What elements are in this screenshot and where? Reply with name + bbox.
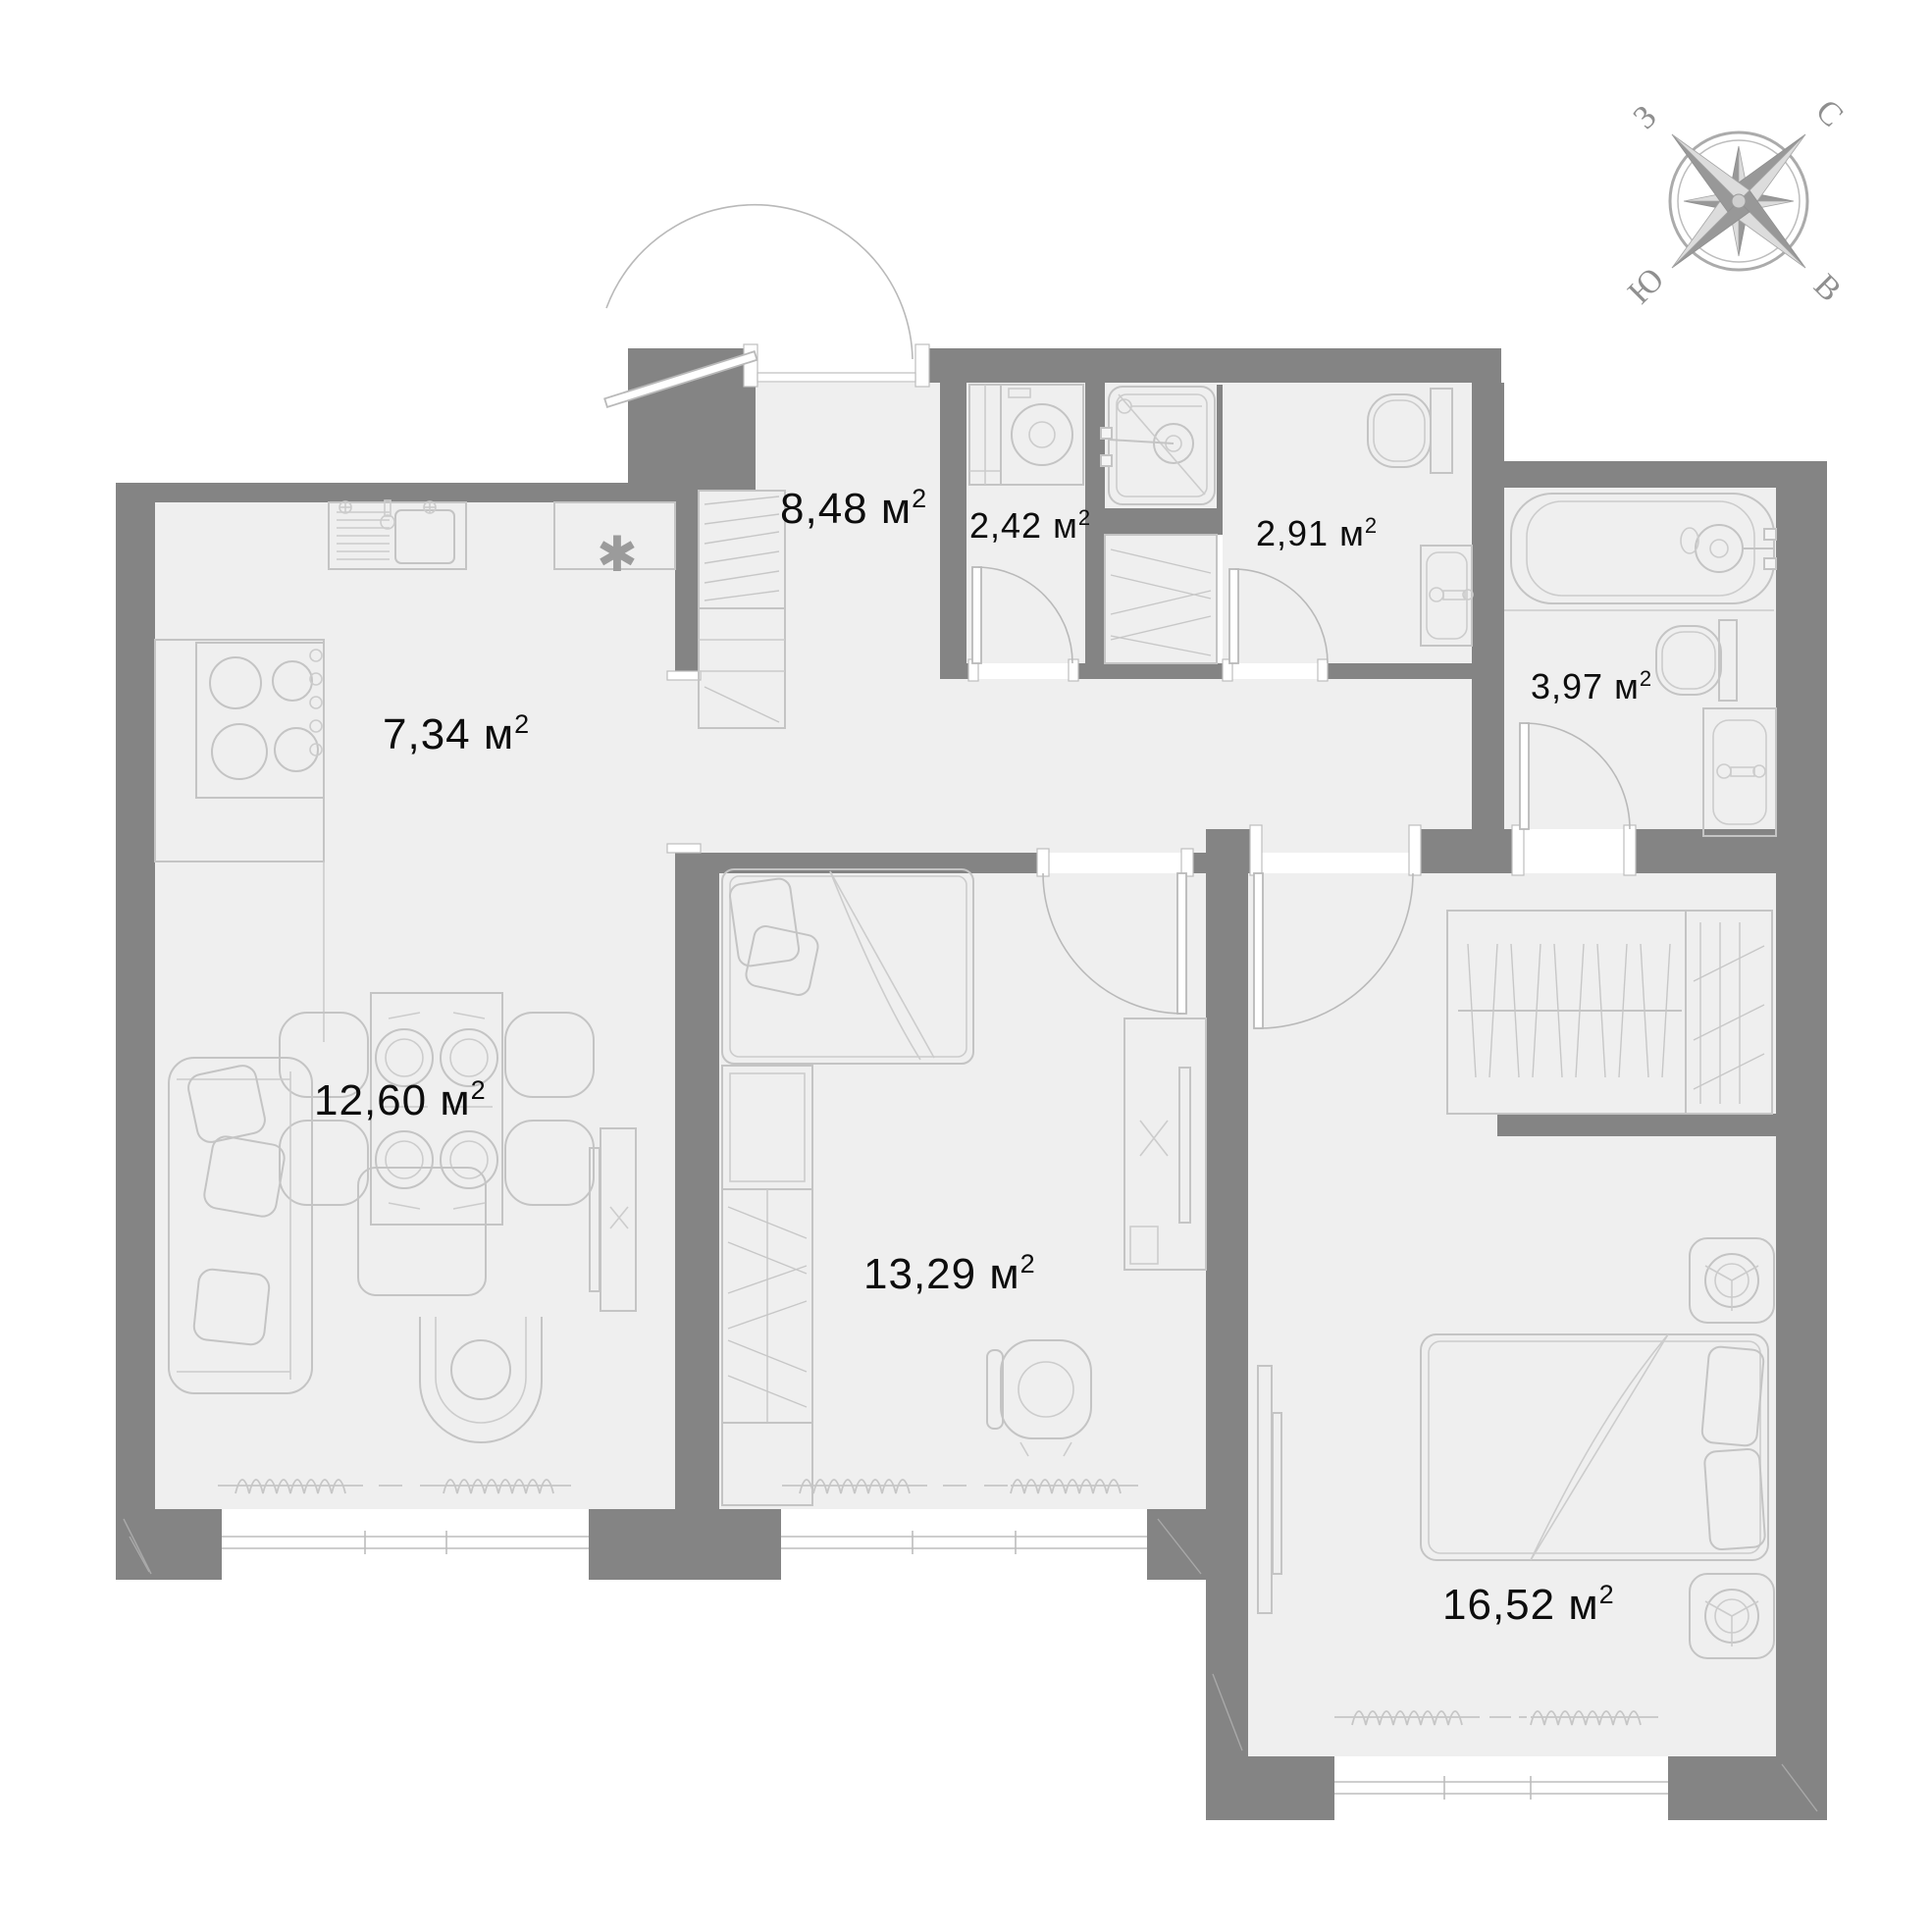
compass-south-label: Ю <box>1621 261 1671 311</box>
floor-plan-page: ✱ <box>0 0 1932 1932</box>
niche-floor <box>1105 535 1217 663</box>
hallway-area-label: 8,48 м2 <box>780 484 927 533</box>
bedroom-floor <box>719 873 1206 1509</box>
kitchen-area-label: 7,34 м2 <box>383 709 530 758</box>
entrance-door-arc <box>606 205 913 359</box>
floor-plan-canvas: ✱ <box>0 0 1932 1932</box>
corridor-jamb-top <box>667 671 701 680</box>
corridor-floor <box>675 679 1472 853</box>
bathroom-floor <box>1504 488 1776 829</box>
wc-area-label: 2,91 м2 <box>1256 513 1378 553</box>
hall-floor-top <box>756 383 940 493</box>
kitchen-marker-icon: ✱ <box>597 527 638 582</box>
corridor-jamb-bottom <box>667 844 701 853</box>
compass-east-label: В <box>1806 268 1848 309</box>
window-master <box>1334 1756 1668 1820</box>
compass-north-label: С <box>1808 93 1850 134</box>
living-area-label: 12,60 м2 <box>314 1075 487 1124</box>
master-area-label: 16,52 м2 <box>1442 1580 1615 1629</box>
window-bedroom <box>781 1509 1147 1580</box>
window-living <box>222 1509 589 1580</box>
compass-west-label: З <box>1627 99 1664 136</box>
kitchen-living-floor <box>155 502 675 1509</box>
bathroom-area-label: 3,97 м2 <box>1531 666 1652 706</box>
bedroom-area-label: 13,29 м2 <box>863 1249 1036 1298</box>
compass-rose-icon: З С Ю В <box>1621 93 1850 312</box>
laundry-area-label: 2,42 м2 <box>969 505 1091 546</box>
